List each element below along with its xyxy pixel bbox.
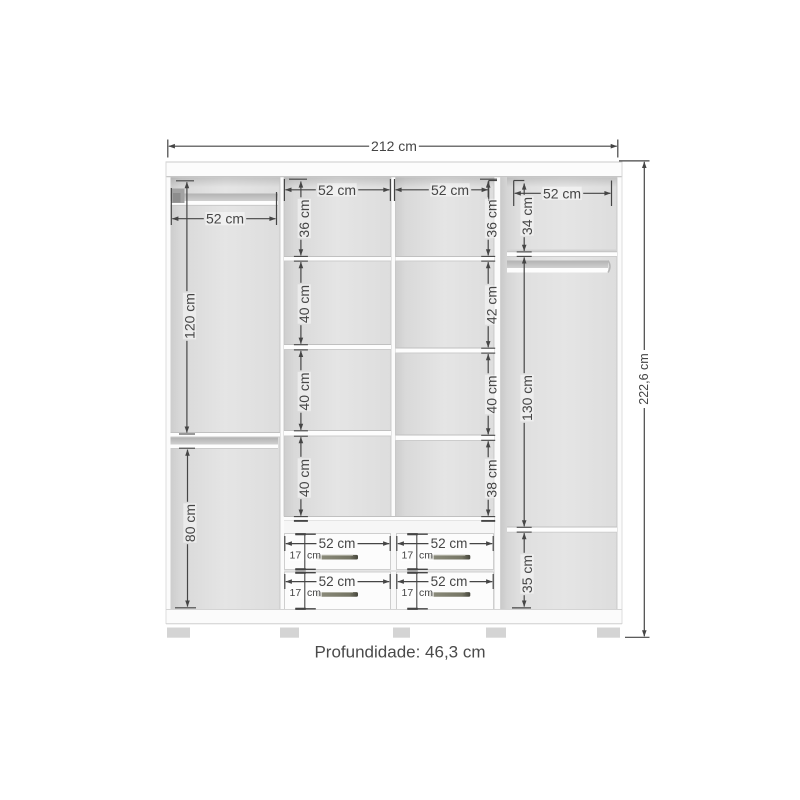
svg-text:52 cm: 52 cm: [206, 211, 244, 227]
svg-text:38 cm: 38 cm: [484, 459, 500, 497]
svg-text:35 cm: 35 cm: [519, 555, 535, 593]
svg-text:52 cm: 52 cm: [431, 182, 469, 198]
svg-text:40 cm: 40 cm: [296, 285, 312, 323]
svg-text:52 cm: 52 cm: [431, 536, 468, 551]
svg-text:52 cm: 52 cm: [543, 185, 581, 201]
svg-text:40 cm: 40 cm: [296, 459, 312, 497]
svg-text:52 cm: 52 cm: [431, 574, 468, 589]
svg-text:130 cm: 130 cm: [519, 375, 535, 421]
svg-text:17 cm: 17 cm: [402, 549, 434, 561]
svg-text:40 cm: 40 cm: [484, 375, 500, 413]
svg-text:212 cm: 212 cm: [371, 138, 417, 154]
svg-text:34 cm: 34 cm: [519, 197, 535, 235]
svg-text:40 cm: 40 cm: [296, 372, 312, 410]
svg-text:17 cm: 17 cm: [402, 587, 434, 599]
svg-text:52 cm: 52 cm: [319, 574, 356, 589]
svg-text:52 cm: 52 cm: [319, 536, 356, 551]
svg-text:120 cm: 120 cm: [181, 293, 197, 339]
svg-text:17 cm: 17 cm: [290, 587, 322, 599]
svg-text:222,6 cm: 222,6 cm: [637, 353, 651, 404]
svg-text:Profundidade: 46,3 cm: Profundidade: 46,3 cm: [314, 642, 485, 661]
svg-text:52 cm: 52 cm: [318, 182, 356, 198]
svg-text:80 cm: 80 cm: [182, 504, 198, 542]
svg-text:36 cm: 36 cm: [296, 199, 312, 237]
svg-text:17 cm: 17 cm: [290, 549, 322, 561]
svg-text:36 cm: 36 cm: [484, 199, 500, 237]
svg-text:42 cm: 42 cm: [484, 286, 500, 324]
